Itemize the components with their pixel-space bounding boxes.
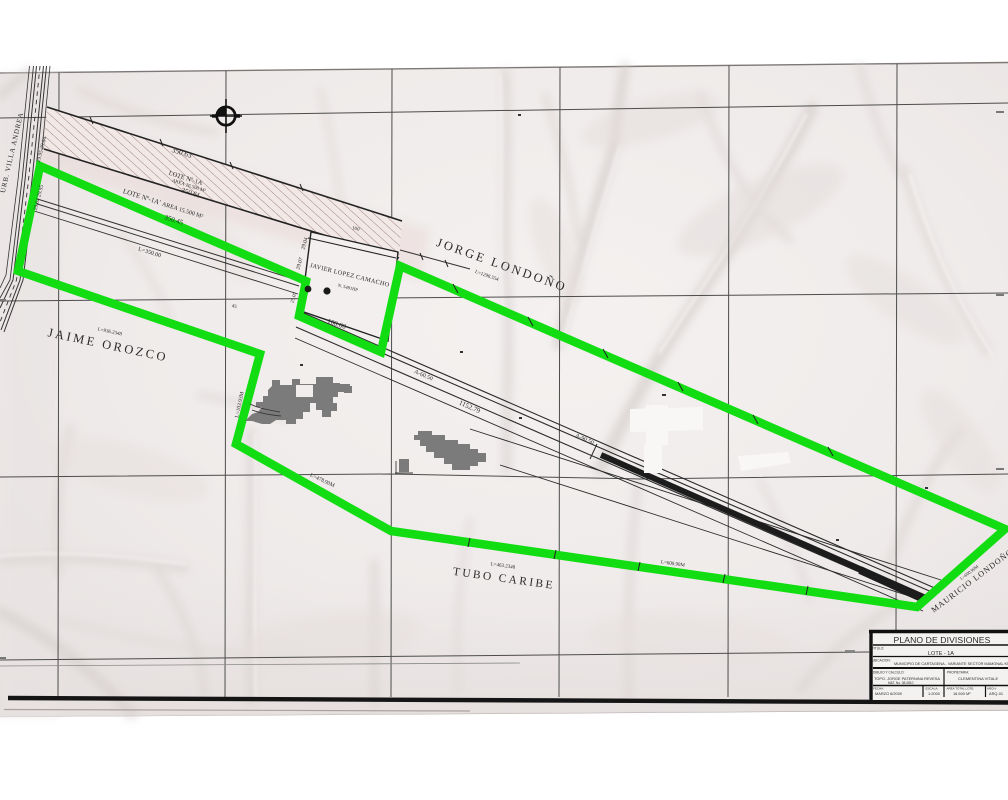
svg-text:CLEMENTINA VITALE: CLEMENTINA VITALE	[958, 676, 998, 681]
svg-text:DIBUJO Y CALCULO:: DIBUJO Y CALCULO:	[873, 671, 905, 675]
svg-text:16.500 M²: 16.500 M²	[953, 691, 971, 696]
svg-text:LOTE - 1A: LOTE - 1A	[928, 651, 954, 657]
svg-text:MARZO 6/2000: MARZO 6/2000	[875, 691, 903, 696]
svg-text:PROPIETARIA:: PROPIETARIA:	[947, 671, 969, 675]
svg-text:1:2000: 1:2000	[928, 691, 941, 696]
svg-text:TITULO:: TITULO:	[872, 647, 884, 651]
svg-text:MAT. No. 08-0810: MAT. No. 08-0810	[888, 681, 914, 685]
svg-text:ARQ-01: ARQ-01	[989, 691, 1003, 696]
svg-text:PLANO DE DIVISIONES: PLANO DE DIVISIONES	[894, 635, 991, 645]
svg-text:MUNICIPIO DE CARTAGENA - VARIA: MUNICIPIO DE CARTAGENA - VARIANTE SECTOR…	[894, 662, 1008, 666]
svg-text:UBICACION:: UBICACION:	[872, 658, 891, 662]
